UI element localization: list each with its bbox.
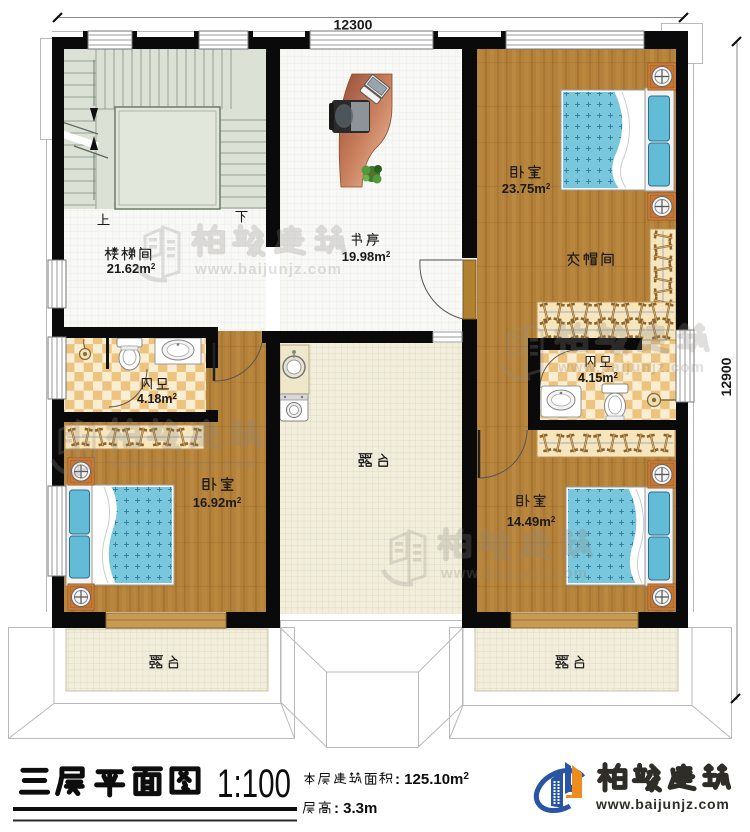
svg-text:www.baijunjz.com: www.baijunjz.com [194,261,342,278]
svg-text:: 125.10m2: : 125.10m2 [395,771,469,788]
svg-text:16.92m2: 16.92m2 [193,495,242,510]
svg-text:www.baijunjz.com: www.baijunjz.com [109,455,257,472]
svg-text:: 3.3m: : 3.3m [334,800,377,817]
svg-text:21.62m2: 21.62m2 [107,261,156,276]
svg-text:23.75m2: 23.75m2 [502,181,551,196]
svg-text:12900: 12900 [718,357,734,396]
svg-text:www.baijunjz.com: www.baijunjz.com [440,565,588,582]
svg-text:1:100: 1:100 [217,762,291,806]
svg-text:4.18m2: 4.18m2 [137,392,177,406]
svg-text:19.98m2: 19.98m2 [342,249,391,264]
svg-text:14.49m2: 14.49m2 [507,514,556,529]
svg-text:www.baijunjz.com: www.baijunjz.com [595,796,730,812]
svg-text:12300: 12300 [334,17,373,33]
svg-text:www.baijunjz.com: www.baijunjz.com [557,359,705,376]
